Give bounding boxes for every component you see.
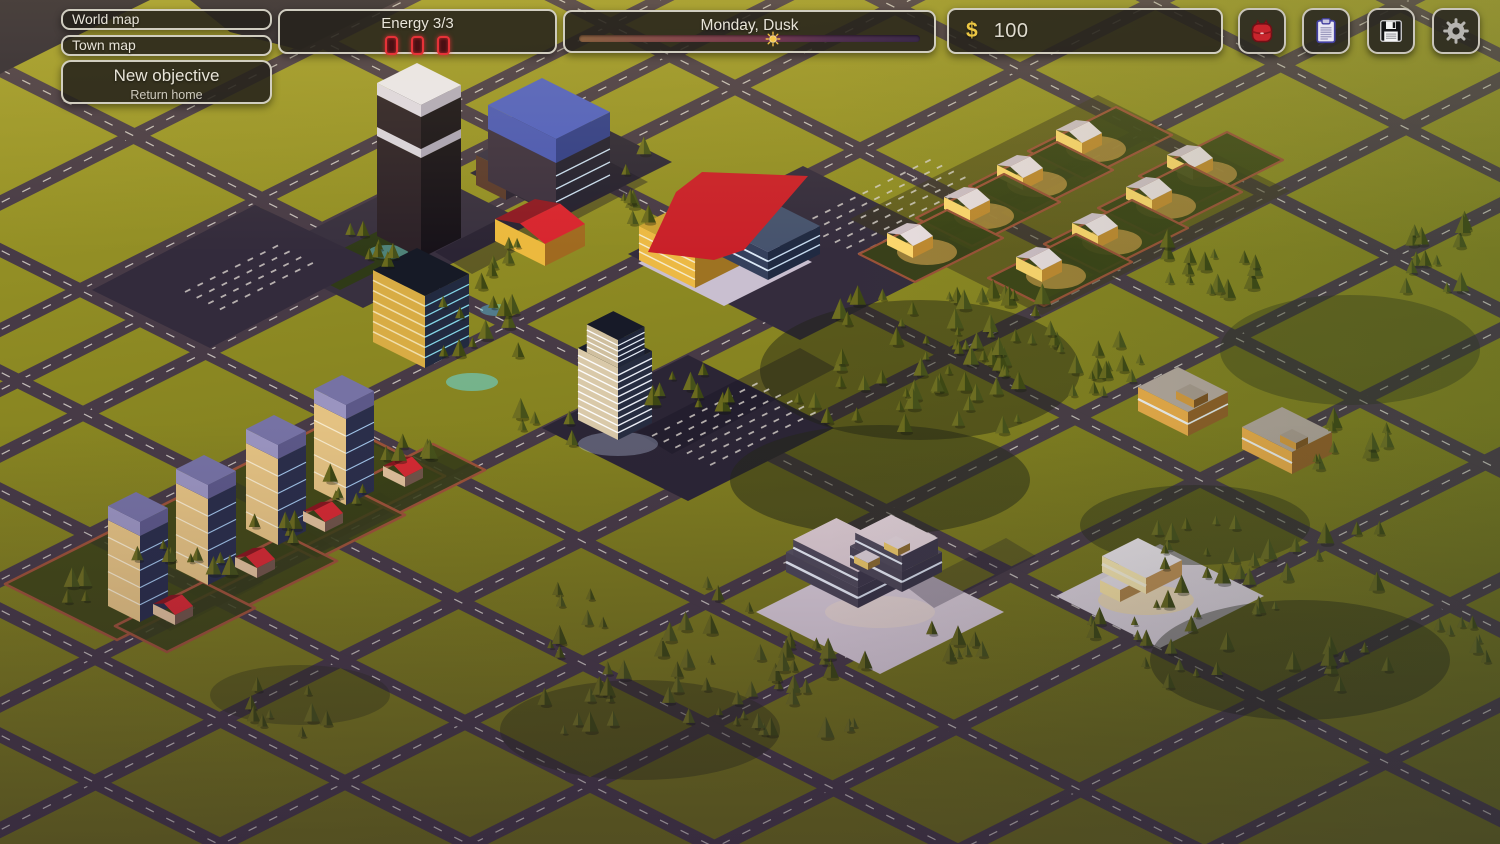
- energy-label: Energy 3/3: [280, 15, 555, 32]
- sun-icon: [766, 31, 781, 46]
- day-time-panel: Monday, Dusk: [563, 10, 936, 53]
- dollar-icon: $: [966, 19, 978, 43]
- energy-panel: Energy 3/3: [278, 9, 557, 54]
- tasks-button[interactable]: [1302, 8, 1350, 54]
- inventory-button[interactable]: [1238, 8, 1286, 54]
- backpack-icon: [1247, 16, 1277, 46]
- gear-icon: [1440, 15, 1472, 47]
- floppy-disk-icon: [1376, 16, 1406, 46]
- sun-marker: [766, 31, 781, 46]
- save-button[interactable]: [1367, 8, 1415, 54]
- dusk-vignette: [0, 0, 1500, 844]
- objective-subtitle: Return home: [63, 88, 270, 102]
- clipboard-icon: [1311, 16, 1341, 46]
- day-time-label: Monday, Dusk: [565, 17, 934, 35]
- objective-panel[interactable]: New objective Return home: [61, 60, 272, 104]
- city-map-view[interactable]: [0, 0, 1500, 844]
- settings-button[interactable]: [1432, 8, 1480, 54]
- energy-cells: [280, 36, 555, 55]
- world-map-button[interactable]: World map: [61, 9, 272, 30]
- energy-cell: [437, 36, 450, 55]
- game-screen: World map Town map New objective Return …: [0, 0, 1500, 844]
- money-amount: 100: [994, 20, 1029, 43]
- objective-title: New objective: [63, 66, 270, 86]
- town-map-button[interactable]: Town map: [61, 35, 272, 56]
- money-panel: $ 100: [947, 8, 1223, 54]
- energy-cell: [411, 36, 424, 55]
- energy-cell: [385, 36, 398, 55]
- day-progress-bar: [579, 35, 920, 42]
